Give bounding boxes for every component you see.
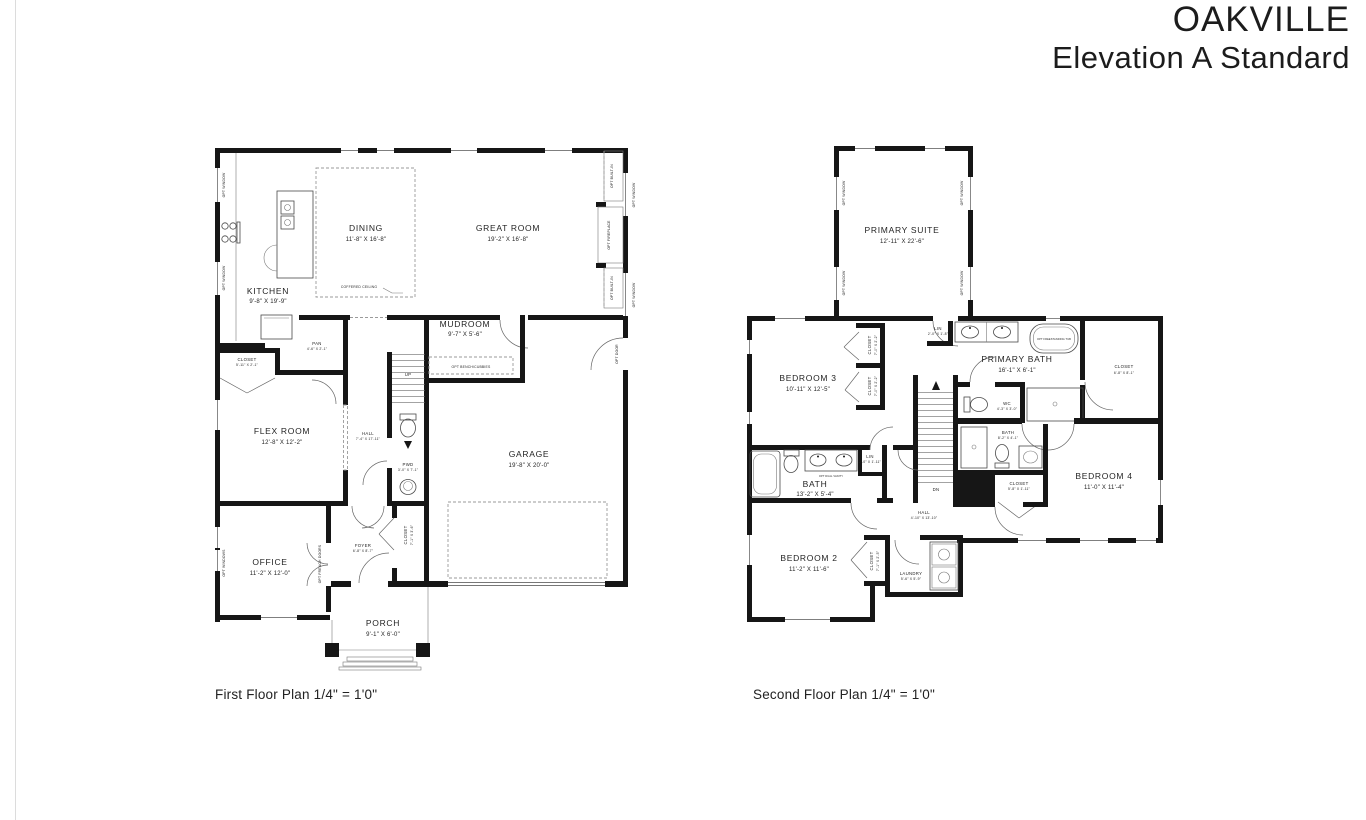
room-label-closet: CLOSET <box>238 357 257 362</box>
room-dims-lin1: 2'-0" X 1'-8" <box>928 332 949 336</box>
note-up: UP <box>405 372 412 377</box>
note-opt-built-in-1: OPT BUILT-IN <box>610 164 614 188</box>
f2-bath-right-wall <box>1080 316 1085 380</box>
room-dims-primary-closet: 6'-8" X 8'-1" <box>1114 371 1135 375</box>
stairs-up <box>392 354 425 406</box>
f1-front-wall-b <box>388 581 425 587</box>
note-opt-window-4: OPT WINDOW <box>632 282 636 307</box>
note-opt-built-in-2: OPT BUILT-IN <box>610 276 614 300</box>
front-door-arc <box>359 553 389 583</box>
room-dims-hall: 7'-4" X 17'-11" <box>356 437 381 441</box>
room-label-mudroom: MUDROOM <box>440 319 491 329</box>
stair-direction-arrow <box>404 441 412 449</box>
note-opt-door: OPT DOOR <box>615 344 619 364</box>
f1-pan-right-wall <box>343 315 348 375</box>
f1-office-right-wall-a <box>326 506 331 543</box>
f1-pan-bottom-wall <box>280 370 348 375</box>
note-opt-window-1: OPT WINDOW <box>222 172 226 197</box>
room-dims-closet3a: 7'-0" X 2'-2" <box>874 334 878 355</box>
f2-landing-wall-stub <box>893 445 913 450</box>
foyer-closet-doors <box>379 518 394 550</box>
f2-bath4-right-wall <box>1043 424 1048 507</box>
room-label-bedroom3: BEDROOM 3 <box>779 373 836 383</box>
porch-structure <box>325 587 430 670</box>
room-label-lin2: LIN <box>866 454 874 459</box>
room-dims-closet: 5'-11" X 2'-1" <box>236 363 259 367</box>
room-dims-dining: 11'-8" X 16'-8" <box>346 237 386 243</box>
f2-stair-left-wall <box>913 375 918 503</box>
note-opt-window-2: OPT WINDOW <box>222 265 226 290</box>
f2-wc-top-wall-b <box>995 382 1025 387</box>
porch-column-left <box>325 643 339 657</box>
stove-icon <box>222 222 240 243</box>
f1-garage-bottom-wall-right <box>605 581 628 587</box>
f2-left-wall <box>747 316 752 622</box>
room-label-office: OFFICE <box>252 557 287 567</box>
room-label-pan: PAN <box>312 341 321 346</box>
room-dims-bedroom3: 10'-11" X 12'-5" <box>786 387 830 393</box>
room-dims-hall2: 4'-10" X 13'-10" <box>911 516 938 520</box>
room-label-primary-bath: PRIMARY BATH <box>981 354 1052 364</box>
room-dims-pwd: 3'-0" X 7'-1" <box>398 468 419 472</box>
room-dims-primary-bath: 16'-1" X 6'-1" <box>998 368 1035 374</box>
room-label-garage: GARAGE <box>509 449 550 459</box>
note-f2-opt-window-2: OPT WINDOW <box>842 270 846 295</box>
room-label-closet3b: CLOSET <box>867 376 872 395</box>
room-label-laundry: LAUNDRY <box>900 571 923 576</box>
f1-wall-a3 <box>528 315 623 320</box>
f1-closet-top-wall <box>215 348 280 353</box>
room-label-kitchen: KITCHEN <box>247 286 289 296</box>
room-dims-foyer: 6'-8" X 8'-7" <box>353 549 374 553</box>
f1-pwd-bottom-wall <box>387 501 429 506</box>
f2-wc-right-wall <box>1020 387 1025 423</box>
note-opt-windows: OPT WINDOWS <box>222 549 226 577</box>
stair-up-arrow <box>932 381 940 390</box>
f1-front-wall-a <box>331 581 351 587</box>
room-dims-closet4: 5'-8" X 1'-11" <box>1008 487 1031 491</box>
f2-laundry-top-wall <box>920 535 963 540</box>
room-dims-pan: 4'-6" X 2'-1" <box>307 347 328 351</box>
stairs-down <box>918 392 953 484</box>
garage-door-dashed-area <box>448 502 607 578</box>
f1-mudroom-right-wall <box>520 315 525 383</box>
porch-column-right <box>416 643 430 657</box>
room-label-bedroom4: BEDROOM 4 <box>1075 471 1132 481</box>
first-floor-caption: First Floor Plan 1/4" = 1'0" <box>215 687 377 702</box>
room-label-great-room: GREAT ROOM <box>476 223 540 233</box>
room-label-pwd: PWD <box>403 462 414 467</box>
f2-wall-362-a <box>953 502 995 507</box>
f2-bed3-closets <box>844 323 885 410</box>
room-label-primary-closet: CLOSET <box>1115 364 1134 369</box>
note-f2-opt-window-4: OPT WINDOW <box>960 270 964 295</box>
laundry-door-arc <box>895 540 919 564</box>
note-f2-opt-window-3: OPT WINDOW <box>960 180 964 205</box>
f2-wall-362-b <box>1023 502 1048 507</box>
f2-suite-top-wall <box>834 146 973 151</box>
room-label-bath4: BATH <box>1002 430 1014 435</box>
note-opt-bench: OPT BENCH/CUBBIES <box>452 365 491 369</box>
note-opt-fireplace: OPT FIREPLACE <box>607 220 611 250</box>
stair-chase-black <box>958 475 995 502</box>
room-label-closet2: CLOSET <box>869 551 874 570</box>
flex-closet-doors <box>220 378 275 393</box>
room-label-closet4: CLOSET <box>1010 481 1029 486</box>
f2-bed3-bottom-wall <box>747 445 870 450</box>
bed2-door-arc <box>851 503 877 529</box>
room-dims-mudroom: 9'-7" X 5'-6" <box>448 332 482 338</box>
fridge-icon <box>261 315 292 339</box>
note-opt-window-3: OPT WINDOW <box>632 182 636 207</box>
f2-band-wall-3 <box>958 316 1046 321</box>
room-label-flex: FLEX ROOM <box>254 426 310 436</box>
bed3-door-arc <box>870 427 893 450</box>
room-label-porch: PORCH <box>366 618 400 628</box>
f2-laundry-right-wall <box>958 535 963 597</box>
room-dims-lin2: 2'-0" X 1'-11" <box>859 460 882 464</box>
bed4-hall-door-arc <box>995 507 1023 535</box>
f2-closet2-connector-wall <box>870 586 875 622</box>
f2-shower-right-wall <box>1080 385 1085 423</box>
primary-closet-door-arc <box>1085 382 1113 410</box>
elevation-subtitle: Elevation A Standard <box>1052 40 1350 76</box>
room-dims-foyer-closet: 7'-1" X 3'-6" <box>410 524 414 545</box>
floorplan-sheet: OAKVILLE Elevation A Standard <box>0 0 1366 820</box>
f2-right-wall <box>1158 316 1163 543</box>
second-floor-plan: PRIMARY SUITE 12'-11" X 22'-6" BEDROOM 3… <box>730 140 1180 640</box>
f2-band-wall-2 <box>805 316 933 321</box>
room-dims-flex: 12'-8" X 12'-2" <box>262 440 303 446</box>
first-floor-plan: KITCHEN 9'-8" X 19'-9" DINING 11'-8" X 1… <box>211 138 647 673</box>
coffered-leader-line <box>383 288 403 293</box>
f2-stair-right-wall <box>953 375 958 503</box>
room-dims-porch: 9'-1" X 6'-0" <box>366 632 400 638</box>
room-dims-great-room: 19'-2" X 16'-8" <box>488 237 529 243</box>
f1-closet-right-wall <box>275 348 280 375</box>
f1-office-right-wall-b <box>326 586 331 612</box>
room-dims-primary-suite: 12'-11" X 22'-6" <box>880 239 924 245</box>
f2-laundry-bottom-wall <box>885 592 963 597</box>
f1-foyer-closet-stub-a <box>392 506 397 518</box>
primary-vanity-icon <box>955 322 1018 342</box>
f1-flex-bottom-wall <box>215 501 348 506</box>
f2-bath-bottom-wall-a <box>747 498 851 503</box>
note-dn: DN <box>933 487 940 492</box>
note-coffered-ceiling: COFFERED CEILING <box>341 285 378 289</box>
f1-mudroom-bottom-wall <box>428 378 525 383</box>
note-f2-opt-window-1: OPT WINDOW <box>842 180 846 205</box>
room-label-bath: BATH <box>803 479 828 489</box>
title-block: OAKVILLE Elevation A Standard <box>1052 0 1350 76</box>
room-dims-closet2: 7'-1" X 2'-5" <box>876 550 880 571</box>
room-dims-garage: 19'-8" X 20'-0" <box>509 463 550 469</box>
note-opt-dual-vanity: OPT DUAL VANITY <box>819 474 843 478</box>
pwd-door-arc <box>363 461 387 485</box>
f2-bath4-bottom-wall <box>957 470 1048 475</box>
room-dims-closet3b: 7'-0" X 2'-2" <box>874 375 878 396</box>
primary-shower-icon <box>1027 388 1083 421</box>
room-dims-kitchen: 9'-8" X 19'-9" <box>249 299 286 305</box>
room-label-hall: HALL <box>362 431 374 436</box>
room-dims-office: 11'-2" X 12'-0" <box>250 571 290 577</box>
bed2-closet-doors <box>851 542 867 578</box>
wc-toilet-icon <box>964 397 988 412</box>
room-label-primary-suite: PRIMARY SUITE <box>865 225 940 235</box>
foyer-arch-arcs <box>352 506 384 528</box>
washer-dryer-icons <box>930 542 958 590</box>
room-label-foyer-closet: CLOSET <box>403 525 408 544</box>
f1-flex-right-wall-a <box>343 375 348 405</box>
room-label-wc: WC <box>1003 401 1011 406</box>
f1-flex-right-wall-b <box>343 470 348 506</box>
room-dims-bedroom4: 11'-0" X 11'-4" <box>1084 485 1124 491</box>
room-dims-bedroom2: 11'-2" X 11'-6" <box>789 567 829 573</box>
room-label-hall2: HALL <box>918 510 930 515</box>
f2-bed4-bottom-wall <box>957 538 1163 543</box>
pwd-toilet-icon <box>400 414 416 437</box>
room-label-bedroom2: BEDROOM 2 <box>780 553 837 563</box>
sheet-left-border <box>15 0 16 820</box>
plan-name-title: OAKVILLE <box>1052 0 1350 40</box>
flex-cased-opening <box>344 405 348 470</box>
f1-kitchen-bottom-wall <box>215 343 265 348</box>
f1-stair-left-wall <box>387 352 392 505</box>
note-opt-french-doors: OPT FRENCH DOORS <box>318 544 322 583</box>
room-dims-bath: 13'-2" X 5'-4" <box>796 492 833 498</box>
f2-lin1-bottom-wall <box>927 341 953 346</box>
room-dims-bath4: 8'-2" X 4'-1" <box>998 436 1019 440</box>
f1-wall-a1 <box>299 315 350 320</box>
room-label-dining: DINING <box>349 223 383 233</box>
room-label-closet3a: CLOSET <box>867 335 872 354</box>
room-dims-wc: 4'-3" X 3'-0" <box>997 407 1018 411</box>
room-dims-laundry: 5'-6" X 5'-9" <box>901 577 922 581</box>
f2-wall-278-a <box>957 418 1022 424</box>
f2-wall-278-b <box>1074 418 1163 424</box>
f2-wc-top-wall-a <box>958 382 970 387</box>
f2-band-wall-4 <box>1060 316 1163 321</box>
f2-suite-windows <box>833 145 974 300</box>
flex-door-arc <box>312 380 336 404</box>
f2-closet2-bottom-wall <box>864 581 890 586</box>
f1-foyer-closet-stub-b <box>392 568 397 581</box>
note-opt-tub: OPT FREESTANDING TUB <box>1037 337 1071 341</box>
room-label-foyer: FOYER <box>355 543 371 548</box>
kitchen-island <box>264 191 313 278</box>
pwd-sink-icon <box>400 480 416 495</box>
second-floor-caption: Second Floor Plan 1/4" = 1'0" <box>753 687 935 702</box>
room-label-lin1: LIN <box>934 326 942 331</box>
